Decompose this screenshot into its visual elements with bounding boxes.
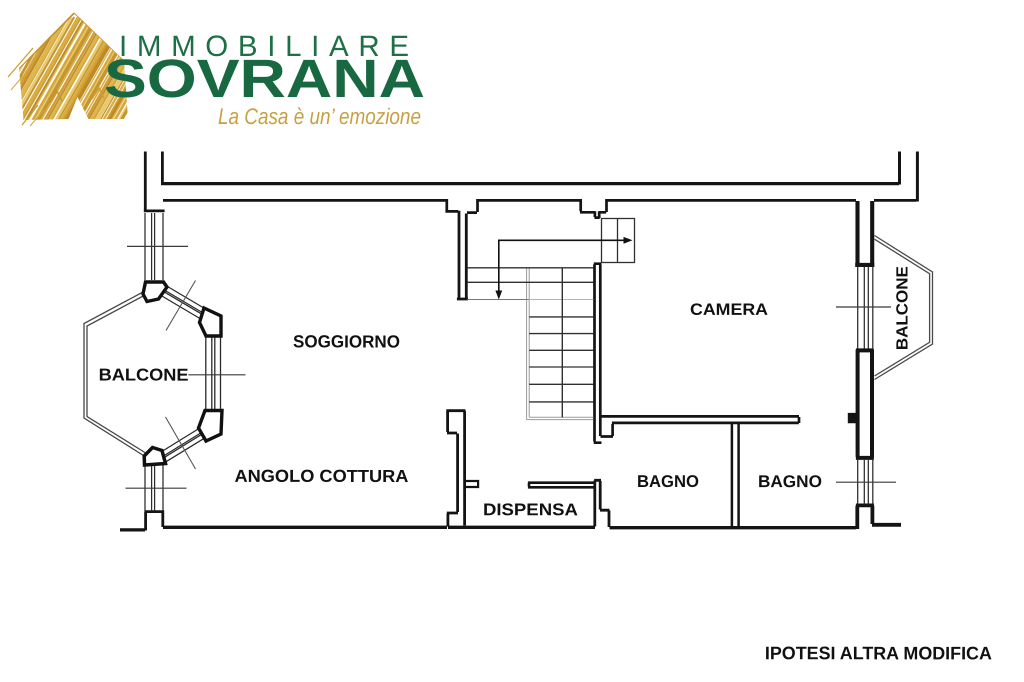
svg-text:BAGNO: BAGNO bbox=[758, 472, 822, 491]
svg-text:IPOTESI ALTRA MODIFICA: IPOTESI ALTRA MODIFICA bbox=[765, 643, 992, 663]
svg-text:SOVRANA: SOVRANA bbox=[104, 49, 425, 109]
svg-text:SOGGIORNO: SOGGIORNO bbox=[293, 331, 400, 351]
svg-text:BALCONE: BALCONE bbox=[99, 365, 189, 385]
svg-text:BAGNO: BAGNO bbox=[637, 472, 699, 491]
svg-text:La Casa è un’ emozione: La Casa è un’ emozione bbox=[218, 104, 421, 129]
svg-text:DISPENSA: DISPENSA bbox=[483, 500, 578, 519]
svg-text:ANGOLO COTTURA: ANGOLO COTTURA bbox=[234, 466, 408, 486]
svg-text:BALCONE: BALCONE bbox=[893, 266, 911, 350]
svg-text:CAMERA: CAMERA bbox=[690, 301, 768, 319]
